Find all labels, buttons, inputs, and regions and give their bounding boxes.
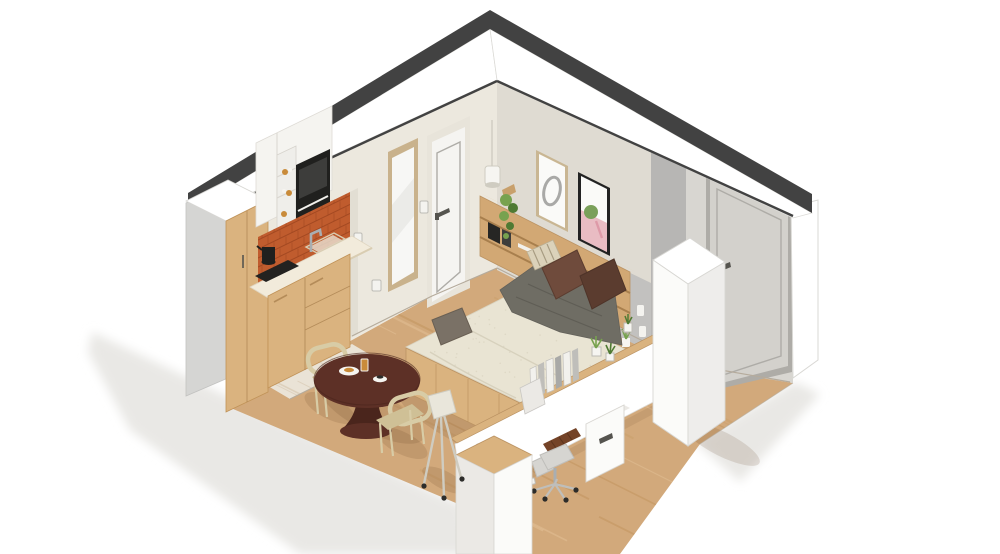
duvet-stipple <box>474 323 476 325</box>
duvet-stipple <box>509 371 511 373</box>
duvet-stipple <box>434 351 436 353</box>
duvet-stipple <box>520 359 522 361</box>
handle-rose <box>435 213 439 220</box>
apartment-isometric-render <box>0 0 1000 554</box>
wardrobe-front <box>653 260 688 446</box>
duvet-stipple <box>489 324 491 326</box>
duvet-stipple <box>539 334 541 336</box>
duvet-stipple <box>468 347 470 349</box>
wardrobe-side <box>688 262 725 446</box>
duvet-stipple <box>499 362 501 364</box>
power-outlet <box>372 280 381 291</box>
light-switch-bed-1 <box>637 305 644 316</box>
duvet-stipple <box>479 341 481 343</box>
duvet-stipple <box>589 365 591 367</box>
duvet-stipple <box>556 340 558 342</box>
duvet-stipple <box>550 354 552 356</box>
duvet-stipple <box>488 319 490 321</box>
duvet-stipple <box>456 353 458 355</box>
front-corner-box <box>456 436 532 554</box>
duvet-stipple <box>482 375 484 377</box>
light-switch-door <box>420 201 428 213</box>
white-wardrobe <box>653 238 725 446</box>
duvet-stipple <box>504 333 506 335</box>
light-switch-bed-2 <box>639 326 646 337</box>
duvet-stipple <box>455 357 457 359</box>
duvet-stipple <box>446 352 448 354</box>
duvet-stipple <box>483 341 485 343</box>
duvet-stipple <box>514 376 516 378</box>
duvet-stipple <box>469 318 471 320</box>
plant-pot-2 <box>622 338 630 347</box>
floor-plank-streak <box>767 504 884 554</box>
render-canvas <box>0 0 1000 554</box>
open-shelf-unit <box>277 146 296 231</box>
duvet-stipple <box>494 327 496 329</box>
duvet-stipple <box>475 338 477 340</box>
duvet-stipple <box>478 316 480 318</box>
duvet-stipple <box>505 309 507 311</box>
right-wall-end-face <box>791 200 818 378</box>
duvet-stipple <box>472 338 474 340</box>
duvet-stipple <box>476 371 478 373</box>
duvet-stipple <box>504 372 506 374</box>
duvet-stipple <box>527 352 529 354</box>
kitchen-niche-side <box>350 188 358 338</box>
